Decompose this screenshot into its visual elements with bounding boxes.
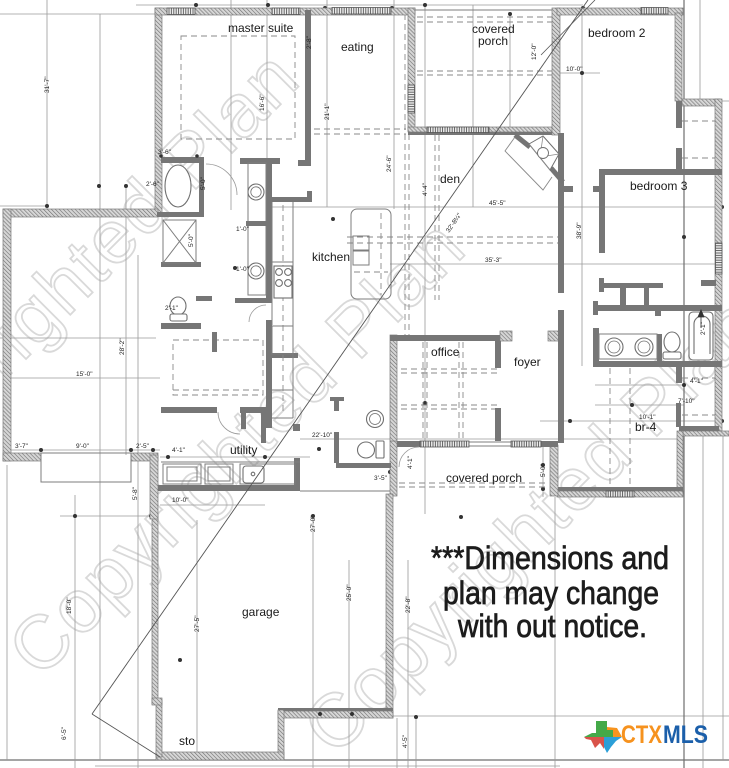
svg-text:1'-0": 1'-0": [236, 266, 250, 273]
svg-text:4'-1": 4'-1": [172, 447, 186, 454]
svg-text:24'-6": 24'-6": [386, 155, 393, 172]
svg-text:10'-1": 10'-1": [639, 414, 656, 421]
svg-text:2'-6": 2'-6": [146, 181, 160, 188]
svg-text:office: office: [431, 345, 460, 359]
svg-text:22'-8": 22'-8": [405, 596, 412, 613]
svg-text:7'-10": 7'-10": [678, 398, 695, 405]
svg-text:45'-5": 45'-5": [489, 200, 506, 207]
svg-text:2'-1": 2'-1": [165, 305, 179, 312]
svg-text:12'-0": 12'-0": [531, 43, 538, 60]
svg-text:covered porch: covered porch: [446, 471, 522, 485]
svg-text:3'-7": 3'-7": [15, 443, 29, 450]
svg-text:27'-0": 27'-0": [310, 515, 317, 532]
svg-text:27'-5": 27'-5": [194, 615, 201, 632]
svg-text:br-4: br-4: [635, 420, 657, 434]
svg-text:kitchen: kitchen: [312, 250, 350, 264]
svg-text:22'-10": 22'-10": [312, 432, 333, 439]
svg-text:4'-1": 4'-1": [407, 455, 414, 469]
svg-text:35'-3": 35'-3": [485, 257, 502, 264]
svg-text:porch: porch: [478, 34, 508, 48]
svg-text:***Dimensions and: ***Dimensions and: [431, 540, 669, 576]
svg-text:18'-0": 18'-0": [66, 597, 73, 614]
svg-text:den: den: [440, 172, 460, 186]
svg-text:utility: utility: [230, 443, 257, 457]
svg-text:2'-8": 2'-8": [306, 35, 313, 49]
svg-text:CTX: CTX: [621, 721, 662, 749]
svg-text:5'-0": 5'-0": [188, 233, 195, 247]
svg-text:2'-5": 2'-5": [136, 443, 150, 450]
svg-text:garage: garage: [242, 605, 280, 619]
svg-text:10'-0": 10'-0": [172, 497, 189, 504]
svg-text:38'-9": 38'-9": [576, 222, 583, 239]
svg-text:31'-7": 31'-7": [44, 76, 51, 93]
svg-text:28'-2": 28'-2": [119, 338, 126, 355]
svg-text:6'-5": 6'-5": [61, 726, 68, 740]
svg-text:5'-0": 5'-0": [200, 176, 207, 190]
svg-text:25'-0": 25'-0": [346, 584, 353, 601]
svg-text:MLS: MLS: [663, 721, 708, 749]
svg-text:10'-0": 10'-0": [566, 66, 583, 73]
svg-text:2'-1": 2'-1": [700, 321, 707, 335]
svg-text:4'-5": 4'-5": [402, 734, 409, 748]
svg-text:5'-0": 5'-0": [540, 463, 547, 477]
svg-text:eating: eating: [341, 40, 374, 54]
svg-text:bedroom 3: bedroom 3: [630, 179, 688, 193]
svg-text:foyer: foyer: [514, 355, 541, 369]
svg-text:5'-8": 5'-8": [132, 486, 139, 500]
svg-text:sto: sto: [179, 734, 195, 748]
svg-text:21'-1": 21'-1": [324, 103, 331, 120]
svg-text:master suite: master suite: [228, 21, 294, 35]
svg-text:4'-1": 4'-1": [690, 378, 704, 385]
svg-text:plan may change: plan may change: [443, 575, 659, 611]
svg-text:4'-4": 4'-4": [422, 182, 429, 196]
svg-text:1'-0": 1'-0": [236, 226, 250, 233]
svg-text:16'-6": 16'-6": [259, 94, 266, 111]
svg-text:9'-0": 9'-0": [76, 443, 90, 450]
svg-text:bedroom 2: bedroom 2: [588, 26, 646, 40]
svg-text:3'-5": 3'-5": [374, 475, 388, 482]
svg-text:15'-0": 15'-0": [76, 371, 93, 378]
svg-text:with out notice.: with out notice.: [457, 608, 647, 644]
